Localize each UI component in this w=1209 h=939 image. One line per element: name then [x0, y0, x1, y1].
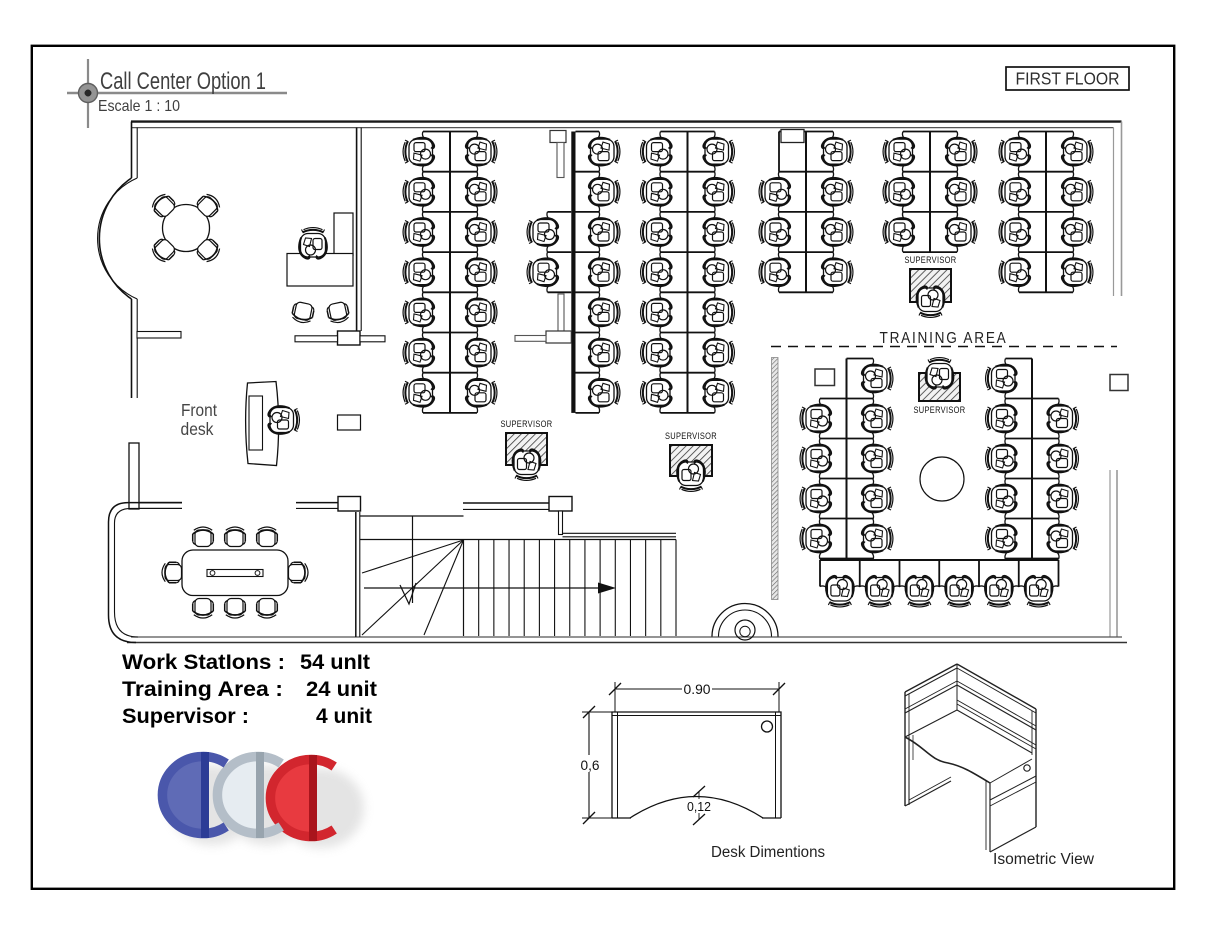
svg-text:Isometric View: Isometric View [993, 851, 1095, 868]
svg-text:SUPERVISOR: SUPERVISOR [501, 419, 553, 429]
svg-text:Escale 1 : 10: Escale 1 : 10 [98, 98, 180, 115]
svg-text:desk: desk [181, 419, 214, 439]
svg-text:Training Area :: Training Area : [122, 678, 283, 701]
svg-text:Desk Dimentions: Desk Dimentions [711, 844, 825, 861]
svg-text:SUPERVISOR: SUPERVISOR [914, 405, 966, 415]
svg-text:TRAINING AREA: TRAINING AREA [880, 330, 1008, 347]
svg-text:FIRST FLOOR: FIRST FLOOR [1016, 69, 1120, 89]
svg-text:Call Center Option 1: Call Center Option 1 [100, 68, 266, 95]
svg-text:0.90: 0.90 [684, 682, 711, 697]
svg-text:0,6: 0,6 [581, 758, 600, 773]
svg-text:0,12: 0,12 [687, 800, 711, 814]
svg-text:Supervisor :: Supervisor : [122, 705, 249, 728]
svg-text:4 unit: 4 unit [316, 705, 372, 728]
svg-text:SUPERVISOR: SUPERVISOR [905, 255, 957, 265]
svg-text:Work StatIons :: Work StatIons : [122, 651, 285, 674]
svg-text:SUPERVISOR: SUPERVISOR [665, 431, 717, 441]
svg-text:24 unit: 24 unit [306, 678, 377, 701]
svg-text:Front: Front [181, 400, 217, 420]
svg-text:54 unIt: 54 unIt [300, 651, 370, 674]
